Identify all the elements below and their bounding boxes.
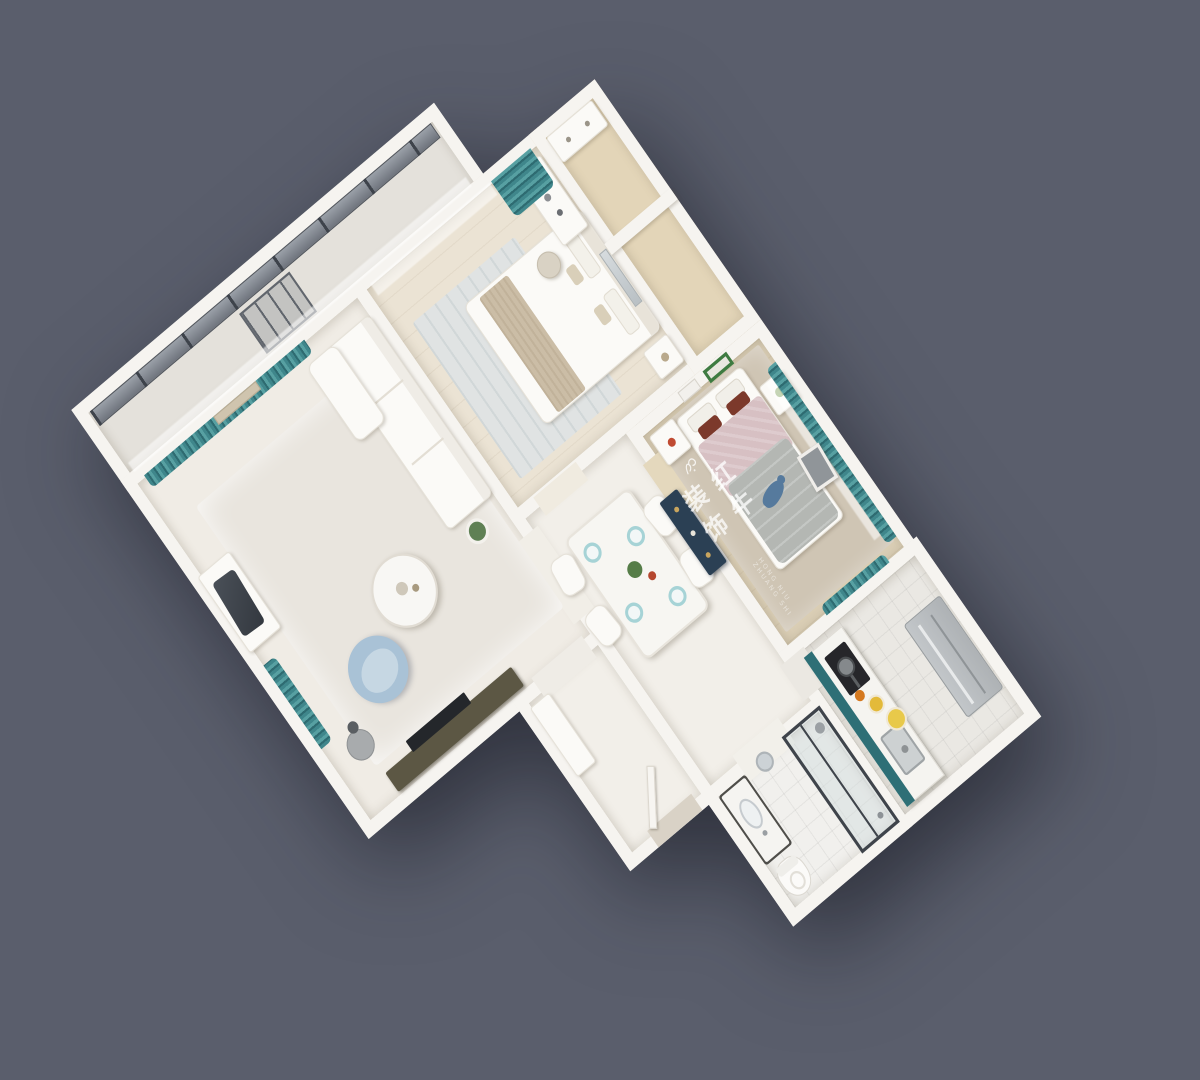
sofa-cushion-line [411, 437, 444, 465]
shower-head [813, 720, 827, 736]
scene-backdrop: 红牛装饰 HONG NIU ZHUANG SHI [0, 0, 1200, 1080]
red-toy [666, 436, 677, 449]
pan-handle [850, 674, 861, 688]
armchair-seat [354, 640, 406, 701]
nightstand-decor [659, 351, 670, 364]
toilet-seat [787, 867, 809, 892]
sink-faucet [900, 743, 910, 754]
cooking-pan [833, 653, 858, 681]
coffee-table-decor [411, 582, 421, 593]
coffee-table-decor [393, 579, 410, 598]
cabinet-handle [584, 120, 591, 128]
apartment-floorplan: 红牛装饰 HONG NIU ZHUANG SHI [60, 0, 1044, 1080]
floorplan-shadow-wrap: 红牛装饰 HONG NIU ZHUANG SHI [0, 0, 1200, 1080]
shower-drain [876, 810, 884, 819]
cabinet-handle [565, 136, 572, 144]
desk-decor [556, 208, 564, 217]
